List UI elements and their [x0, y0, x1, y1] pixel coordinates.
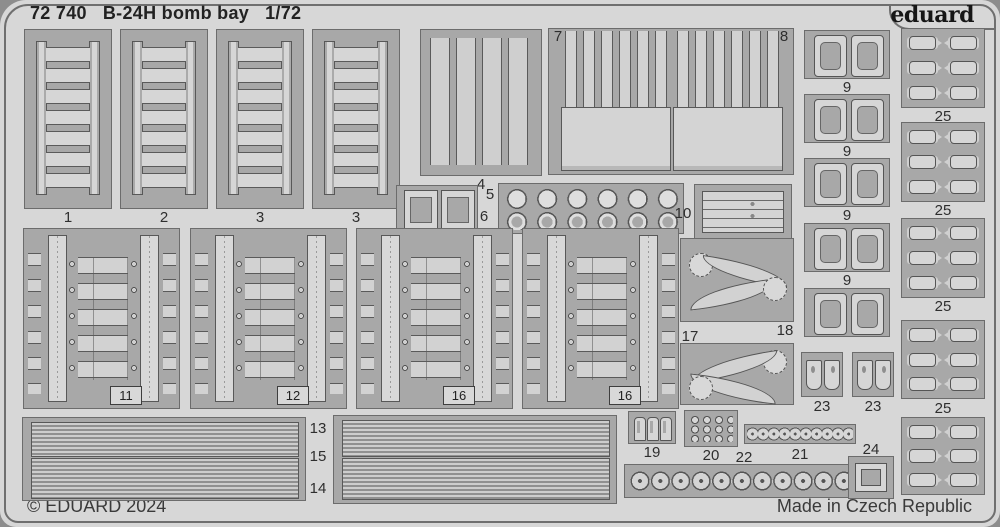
part-label-2: 2	[160, 209, 168, 226]
rack-rail	[215, 235, 234, 402]
part-panel-3b	[312, 29, 400, 209]
part-panel-20	[684, 410, 738, 447]
catalog-number: 72 740	[30, 3, 87, 24]
rack-rail	[307, 235, 326, 402]
part-panel-23a	[801, 352, 843, 397]
spool-grid	[909, 224, 977, 292]
part-label-19: 19	[644, 444, 661, 461]
part-label-12: 12	[277, 386, 309, 405]
bracket-shape	[875, 360, 891, 390]
part-label-3a: 3	[256, 209, 264, 226]
part-panel-skins-b	[333, 415, 617, 504]
rack-slats	[245, 257, 295, 380]
hook-bracket	[634, 417, 646, 441]
part-label-3b: 3	[352, 209, 360, 226]
part-panel-18	[680, 238, 794, 322]
hook-bracket	[660, 417, 672, 441]
rivet-column	[629, 259, 637, 388]
part-label-13: 13	[310, 420, 327, 437]
made-in-text: Made in Czech Republic	[777, 496, 972, 517]
clamp-frame	[851, 163, 884, 205]
comb-teeth	[565, 31, 669, 108]
dot-grid	[689, 415, 733, 442]
part-label-9: 9	[843, 272, 851, 289]
tab-column	[361, 253, 374, 394]
kit-title: B-24H bomb bay	[103, 3, 249, 24]
part-panel-9	[804, 30, 890, 79]
square-frame	[404, 190, 438, 230]
part-label-5: 5	[486, 186, 494, 203]
part-label-7: 7	[554, 28, 562, 45]
clamp-frame	[851, 228, 884, 270]
tab-column	[527, 253, 540, 394]
brand-logo: eduard	[890, 2, 974, 28]
part-panel-3a	[216, 29, 304, 209]
part-panel-5-6	[396, 185, 478, 233]
rivet-column	[130, 259, 138, 388]
bracket-shape	[857, 360, 873, 390]
tab-column	[330, 253, 343, 394]
rack-slats	[411, 257, 461, 380]
kit-scale: 1/72	[265, 3, 301, 24]
spool-grid	[909, 34, 977, 102]
clamp-frame	[814, 293, 847, 335]
part-label-25: 25	[935, 400, 952, 417]
tab-column	[163, 253, 176, 394]
rack-rail	[473, 235, 492, 402]
square-frame	[441, 190, 475, 230]
hook-bracket	[647, 417, 659, 441]
part-label-15: 15	[310, 448, 327, 465]
rivet-column	[297, 259, 305, 388]
part-label-9: 9	[843, 79, 851, 96]
part-panel-19	[628, 411, 676, 444]
scalloped-disc	[763, 277, 787, 301]
part-panel-4	[420, 29, 542, 176]
part-label-10: 10	[675, 205, 692, 222]
rack-slats	[78, 257, 128, 380]
rack-rail	[140, 235, 159, 402]
part-label-16b: 16	[609, 386, 641, 405]
part-panel-9	[804, 223, 890, 272]
part-panel-16b: 16	[522, 228, 679, 409]
part-label-21: 21	[792, 446, 809, 463]
part-panel-22	[624, 464, 858, 498]
part-panel-25	[901, 122, 985, 202]
part-panel-11: 11	[23, 228, 180, 409]
clamp-frame	[851, 293, 884, 335]
part-label-23a: 23	[814, 398, 831, 415]
header: 72 740 B-24H bomb bay 1/72	[30, 3, 301, 24]
part-panel-discs	[498, 183, 684, 234]
part-panel-25	[901, 218, 985, 298]
part-label-25: 25	[935, 202, 952, 219]
part-panel-7-8	[548, 28, 794, 175]
rack-slats	[577, 257, 627, 380]
rivet-strip	[747, 427, 853, 441]
rivet-column	[567, 259, 575, 388]
tab-column	[195, 253, 208, 394]
part-panel-9	[804, 94, 890, 143]
ladder-rungs	[238, 47, 282, 189]
corrugated-skin	[31, 422, 299, 457]
part-label-23b: 23	[865, 398, 882, 415]
part-label-16a: 16	[443, 386, 475, 405]
disc-row	[502, 187, 680, 230]
comb-body	[673, 107, 783, 171]
rack-rail	[48, 235, 67, 402]
part-label-14: 14	[310, 480, 327, 497]
rack-rail	[639, 235, 658, 402]
ladder-rail	[185, 41, 196, 195]
spool-grid	[909, 128, 977, 196]
rivet-column	[68, 259, 76, 388]
comb-body	[561, 107, 671, 171]
part-panel-9	[804, 158, 890, 207]
corrugated-skin	[342, 420, 610, 457]
comb-teeth	[677, 31, 781, 108]
clamp-frame	[814, 99, 847, 141]
spool-grid	[909, 423, 977, 489]
photoetch-sheet-scan: 72 740 B-24H bomb bay 1/72 eduard © EDUA…	[0, 0, 1000, 527]
rivet-column	[235, 259, 243, 388]
part-panel-16a: 16	[356, 228, 513, 409]
tab-column	[496, 253, 509, 394]
part-panel-12: 12	[190, 228, 347, 409]
ladder-rail	[377, 41, 388, 195]
vertical-strips	[430, 38, 532, 165]
part-panel-21	[744, 424, 856, 444]
part-label-9: 9	[843, 207, 851, 224]
tab-column	[662, 253, 675, 394]
part-panel-10	[694, 184, 792, 241]
part-panel-23b	[852, 352, 894, 397]
part-panel-24	[848, 456, 894, 499]
square-ring	[856, 464, 886, 491]
clamp-frame	[851, 99, 884, 141]
rivet-column	[463, 259, 471, 388]
rack-rail	[547, 235, 566, 402]
part-label-25: 25	[935, 298, 952, 315]
part-label-11: 11	[110, 386, 142, 405]
part-panel-25	[901, 28, 985, 108]
clamp-frame	[814, 35, 847, 77]
part-panel-9	[804, 288, 890, 337]
part-label-4: 4	[477, 176, 485, 193]
rivet-column	[401, 259, 409, 388]
corrugated-skin	[31, 458, 299, 499]
part-panel-2	[120, 29, 208, 209]
part-label-9: 9	[843, 143, 851, 160]
part-panel-1	[24, 29, 112, 209]
part-label-25: 25	[935, 108, 952, 125]
part-label-8: 8	[780, 28, 788, 45]
corrugated-skin	[342, 458, 610, 500]
clamp-frame	[814, 163, 847, 205]
ladder-rail	[89, 41, 100, 195]
bracket-shape	[806, 360, 822, 390]
tab-column	[28, 253, 41, 394]
part-panel-25	[901, 417, 985, 495]
part-label-6: 6	[480, 208, 488, 225]
ladder-rail	[281, 41, 292, 195]
fret-sheet: 72 740 B-24H bomb bay 1/72 eduard © EDUA…	[0, 0, 1000, 527]
part-panel-25	[901, 320, 985, 399]
bracket-shape	[824, 360, 840, 390]
ladder-rungs	[142, 47, 186, 189]
spool-grid	[909, 326, 977, 393]
part-label-20: 20	[703, 447, 720, 464]
part-label-18: 18	[777, 322, 794, 339]
part-label-1: 1	[64, 209, 72, 226]
scalloped-disc	[689, 376, 713, 400]
part-panel-17	[680, 343, 794, 405]
part-panel-13-15-14	[22, 417, 306, 501]
rack-rail	[381, 235, 400, 402]
ladder-rungs	[334, 47, 378, 189]
gear-strip	[630, 471, 852, 491]
clamp-frame	[851, 35, 884, 77]
louver-plate	[702, 191, 784, 233]
ladder-rungs	[46, 47, 90, 189]
clamp-frame	[814, 228, 847, 270]
